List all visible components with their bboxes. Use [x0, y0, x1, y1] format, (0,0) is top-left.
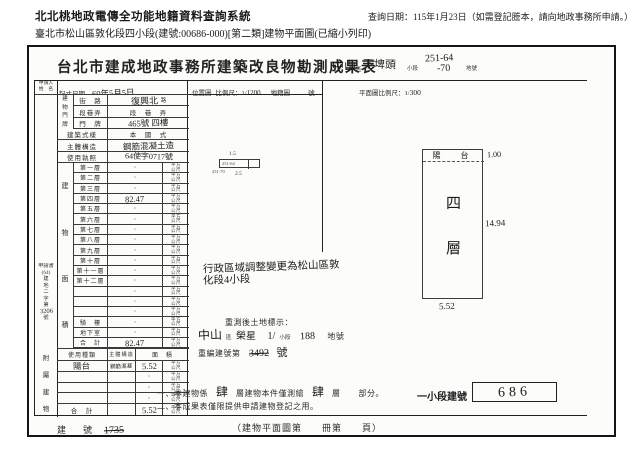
unit-label: 平方公尺 [163, 361, 189, 371]
style-value: 本 國 式 [108, 129, 189, 139]
attached-structure-value [108, 372, 136, 382]
cadastral-label: 地籍圖 [271, 90, 291, 97]
unit-label: 平方公尺 [163, 163, 189, 172]
locmap-lot-left: 251-70 [212, 169, 225, 174]
survey-date-cell: 起丈日期 60年5月5日 [59, 83, 187, 95]
resurvey-lot-handwriting: 188 [300, 331, 315, 343]
new-building-no-value: 686 [498, 384, 532, 401]
form-title: 台北市建成地政事務所建築改良物勘測成果表 [57, 56, 377, 77]
unit-label: 平方公尺 [163, 245, 189, 254]
balcony-divider [423, 161, 484, 162]
unit-label: 平方公尺 [163, 235, 189, 244]
attached-structure-header: 主體構造 [108, 349, 136, 360]
renumber-line: 重編建號第 3492 號 [198, 343, 288, 361]
scanned-document: 台北市建成地政事務所建築改良物勘測成果表 中山 區 下埤頭 小段 251-64 … [27, 45, 616, 437]
area-side-label: 建物 面積 [57, 163, 74, 348]
door-value: 465號 四樓 [108, 118, 189, 128]
lot-suffix-label: 地號 [466, 64, 477, 72]
door-label: 門 牌 [74, 118, 108, 128]
top-rule [188, 80, 587, 81]
location-map-header: 位置圖 比例尺：1/1200 地籍圖 號 [192, 82, 320, 93]
table-header-row: 申請人姓 名 起丈日期 60年5月5日 [35, 81, 189, 95]
floor-area-value: · [108, 184, 163, 193]
street-value: 復興北 路 [108, 95, 189, 105]
old-building-no-value: 1735 [104, 425, 124, 437]
floor-label: 第七層 [74, 225, 108, 234]
floor-area-value: 82.47 [108, 194, 163, 203]
note-1: 一、本建物係 肆 層建物本件僅測繪 肆 層 部分。 [157, 383, 384, 401]
license-value: 64使字0717號 [108, 152, 189, 162]
unit-label: 平方公尺 [163, 287, 189, 296]
floor-area-value: 82.47 [108, 338, 163, 347]
resurvey-subsection-handwriting: 1/ [268, 331, 276, 342]
note-floor-fill-1: 肆 [216, 383, 229, 400]
address-rows: 街 路 復興北 路 段巷弄 段 巷 弄 門 牌 465號 四樓 [74, 95, 189, 129]
attached-area-header: 面 積 [136, 349, 189, 360]
plan-scale-label: 平面圖比例尺： [359, 90, 405, 97]
plan-dim-right: 14.94 [485, 218, 506, 229]
app-window: 北北桃地政電傳全功能地籍資料查詢系統 查詢日期：115年1月23日（如需登記謄本… [0, 0, 640, 449]
floor-plan-rect: 陽 台 四 層 [422, 149, 483, 299]
unit-label: 平方公尺 [163, 276, 189, 285]
floor-area-value: · [108, 276, 163, 285]
floor-label: 第十二層 [74, 276, 108, 285]
floor-area-value: · [108, 307, 163, 316]
unit-label: 平方公尺 [163, 297, 189, 306]
style-label: 建築式樣 [57, 129, 108, 139]
unit-label: 平方公尺 [163, 225, 189, 234]
survey-date-handwriting: 60年5月5日 [92, 86, 135, 95]
resurvey-subsection-label: 小段 [279, 335, 290, 341]
unit-label: 平方公尺 [163, 317, 189, 326]
floor-label: 第九層 [74, 245, 108, 254]
new-building-no-label: 一小段建號 [417, 388, 467, 403]
sheet-no-label: 號 [308, 90, 315, 97]
attached-area-value: 5.52 [136, 361, 163, 371]
lane-value: 段 巷 弄 [108, 106, 189, 116]
floor-area-value: · [108, 245, 163, 254]
locmap-bottom-dim: 2.5 [235, 171, 242, 177]
unit-label: 平方公尺 [163, 307, 189, 316]
attached-use-value [57, 372, 108, 382]
floor-area-value: · [108, 214, 163, 223]
license-label: 使用執照 [57, 152, 108, 162]
old-building-no-label: 建 號 [57, 425, 96, 435]
resurvey-lot-suffix: 地號 [327, 332, 344, 341]
address-side-label: 建物門牌 [57, 95, 74, 129]
unit-label: 平方公尺 [163, 372, 189, 382]
floor-label: 地下室 [74, 328, 108, 337]
filing-note: 申請書 (64) 建 地 二 字 第 3206 號 [35, 263, 57, 353]
book-page-ref: （建物平面圖第 冊第 頁） [232, 421, 382, 434]
system-title: 北北桃地政電傳全功能地籍資料查詢系統 [35, 8, 251, 24]
floor-label [74, 307, 108, 316]
attached-use-value [57, 393, 108, 403]
unit-label: 平方公尺 [163, 184, 189, 193]
floor-area-value: · [108, 204, 163, 213]
location-map-label: 位置圖 [192, 90, 212, 97]
lane-label: 段巷弄 [74, 106, 108, 116]
renumber-label: 重編建號第 [198, 349, 241, 358]
lot-number2-handwriting: -70 [437, 63, 451, 74]
plan-dim-bottom: 5.52 [439, 301, 455, 312]
use-type-header: 使用種類 [57, 349, 108, 360]
unit-label: 平方公尺 [163, 256, 189, 265]
attached-structure-value [108, 393, 136, 403]
unit-label: 平方公尺 [163, 214, 189, 223]
locmap-lot-inside: 251-64 [222, 161, 235, 166]
attached-structure-value: 鋼筋混凝 [108, 361, 136, 371]
renumber-old-handwriting: 3492 [248, 348, 268, 360]
district-handwriting: 中山 [332, 57, 357, 75]
resurvey-line: 中山 區 榮星 1/ 小段 188 地號 [198, 326, 344, 344]
floor-label: 騎 樓 [74, 317, 108, 326]
info-rows: 建築式樣 本 國 式 主體構造 鋼筋混凝土造 使用執照 64使字0717號 [57, 129, 189, 163]
floor-area-value: · [108, 256, 163, 265]
unit-label: 平方公尺 [163, 266, 189, 275]
floor-area-value: · [108, 328, 163, 337]
district-suffix-label: 區 [356, 65, 362, 73]
locmap-top-dim: 1.5 [229, 151, 236, 157]
attached-area-value: · [136, 372, 163, 382]
scale-denominator-handwriting: 1200 [247, 89, 261, 97]
unit-label: 平方公尺 [163, 328, 189, 337]
floor-area-value: · [108, 235, 163, 244]
floor-label: 合 計 [74, 338, 108, 347]
resurvey-section-handwriting: 榮星 [235, 327, 255, 343]
unit-label: 平方公尺 [163, 204, 189, 213]
scale-label: 比例尺： [216, 90, 242, 97]
note-floor-fill-2: 肆 [312, 383, 325, 400]
floor-label: 第二層 [74, 173, 108, 182]
floor-label [74, 297, 108, 306]
floor-area-value: · [108, 287, 163, 296]
floor-area-value: · [108, 317, 163, 326]
unit-label: 平方公尺 [163, 338, 189, 347]
attached-side-label: 附屬 建物 [35, 348, 57, 417]
balcony-handwriting: 陽 台 [423, 150, 484, 161]
floor-label: 第八層 [74, 235, 108, 244]
structure-value: 鋼筋混凝土造 [108, 140, 189, 150]
floor-char-2: 層 [423, 237, 484, 258]
location-map-rect: 251-64 [219, 159, 260, 168]
floor-label: 第十一層 [74, 266, 108, 275]
attached-use-value [57, 383, 108, 393]
floor-label: 第六層 [74, 214, 108, 223]
old-building-no: 建 號 1735 [57, 420, 124, 438]
survey-table: 申請人姓 名 起丈日期 60年5月5日 建物門牌 街 路 復興北 路 [34, 80, 188, 416]
floor-label: 第一層 [74, 163, 108, 172]
bottom-rule [34, 415, 587, 416]
floor-area-value: · [108, 266, 163, 275]
floor-label [74, 287, 108, 296]
plan-scale-header: 平面圖比例尺：1/300 [359, 82, 421, 100]
structure-label: 主體構造 [57, 140, 108, 150]
floor-char-1: 四 [423, 192, 484, 213]
floor-area-value: · [108, 225, 163, 234]
floor-label: 第五層 [74, 204, 108, 213]
subsection-label: 小段 [407, 64, 418, 72]
applicant-label: 申請人姓 名 [35, 81, 57, 95]
resurvey-district-handwriting: 中山 [198, 326, 223, 344]
document-subtitle: 臺北市松山區敦化段四小段(建號:00686-000)[第二類]建物平面圖(已縮小… [35, 25, 371, 40]
area-rows: 第一層 · 平方公尺 第二層 · [74, 163, 189, 348]
renumber-suffix: 號 [277, 344, 288, 360]
floor-area-value: · [108, 163, 163, 172]
new-building-no-box: 686 [472, 382, 557, 402]
resurvey-district-suffix: 區 [226, 335, 232, 341]
floor-label: 第三層 [74, 184, 108, 193]
unit-label: 平方公尺 [163, 173, 189, 182]
admin-note-line2: 化段4小段 [203, 271, 251, 288]
floor-label: 第十層 [74, 256, 108, 265]
attached-use-value: 陽台 [57, 361, 108, 371]
column-divider [322, 80, 323, 252]
unit-label: 平方公尺 [163, 194, 189, 203]
street-label: 街 路 [74, 95, 108, 105]
floor-label: 第四層 [74, 194, 108, 203]
plan-dim-top: 1.00 [487, 150, 501, 159]
floor-area-value: · [108, 297, 163, 306]
attached-structure-value [108, 383, 136, 393]
floor-area-value: · [108, 173, 163, 182]
plan-scale-denominator-handwriting: 300 [410, 88, 421, 97]
note-2: 二、本成果表僅限提供申請建物登記之用。 [157, 401, 319, 412]
section-handwriting: 下埤頭 [363, 56, 396, 73]
query-date: 查詢日期：115年1月23日（如需登記謄本，請向地政事務所申請。） [368, 10, 633, 23]
